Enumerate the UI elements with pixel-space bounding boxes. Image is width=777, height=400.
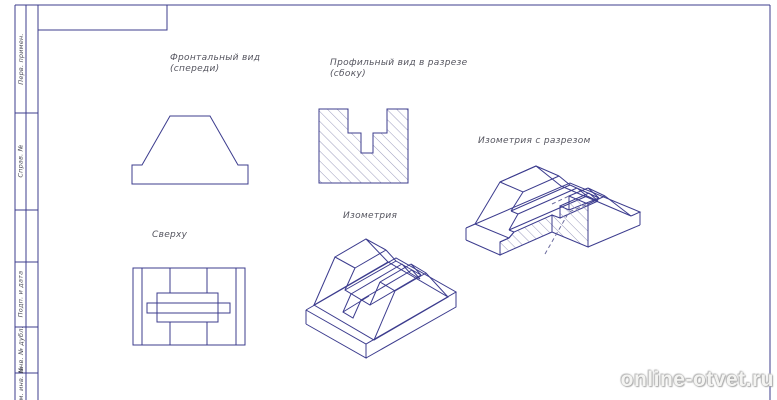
margin-stamp-vzam-inv-no: Взам. инв. № [17,373,25,400]
isometric-cutaway-label: Изометрия с разрезом [478,136,591,147]
site-watermark: online-otvet.ru [621,368,774,392]
margin-stamp-sprav-no: Справ. № [17,113,25,210]
profile-section-drawing [319,109,408,183]
profile-view-label-line2: (сбоку) [330,69,467,80]
isometric-cutaway-drawing [466,166,640,255]
front-view-label-line1: Фронтальный вид [170,53,260,64]
front-view-label: Фронтальный вид (спереди) [170,53,260,75]
front-view-label-line2: (спереди) [170,64,260,75]
top-view-drawing [133,268,245,345]
isometric-label: Изометрия [343,211,397,222]
front-view-drawing [132,116,248,184]
profile-view-label: Профильный вид в разрезе (сбоку) [330,58,467,80]
margin-stamp-podp-i-data: Подп. и дата [17,262,25,327]
top-view-label: Сверху [152,230,187,241]
margin-stamp-perv-primen: Перв. примен. [17,5,25,113]
section-face-hatched [552,196,588,247]
drawing-sheet: Фронтальный вид (спереди) Профильный вид… [0,0,777,400]
profile-view-label-line1: Профильный вид в разрезе [330,58,467,69]
isometric-drawing [306,239,456,358]
base-cut-face-hatched [500,215,552,255]
